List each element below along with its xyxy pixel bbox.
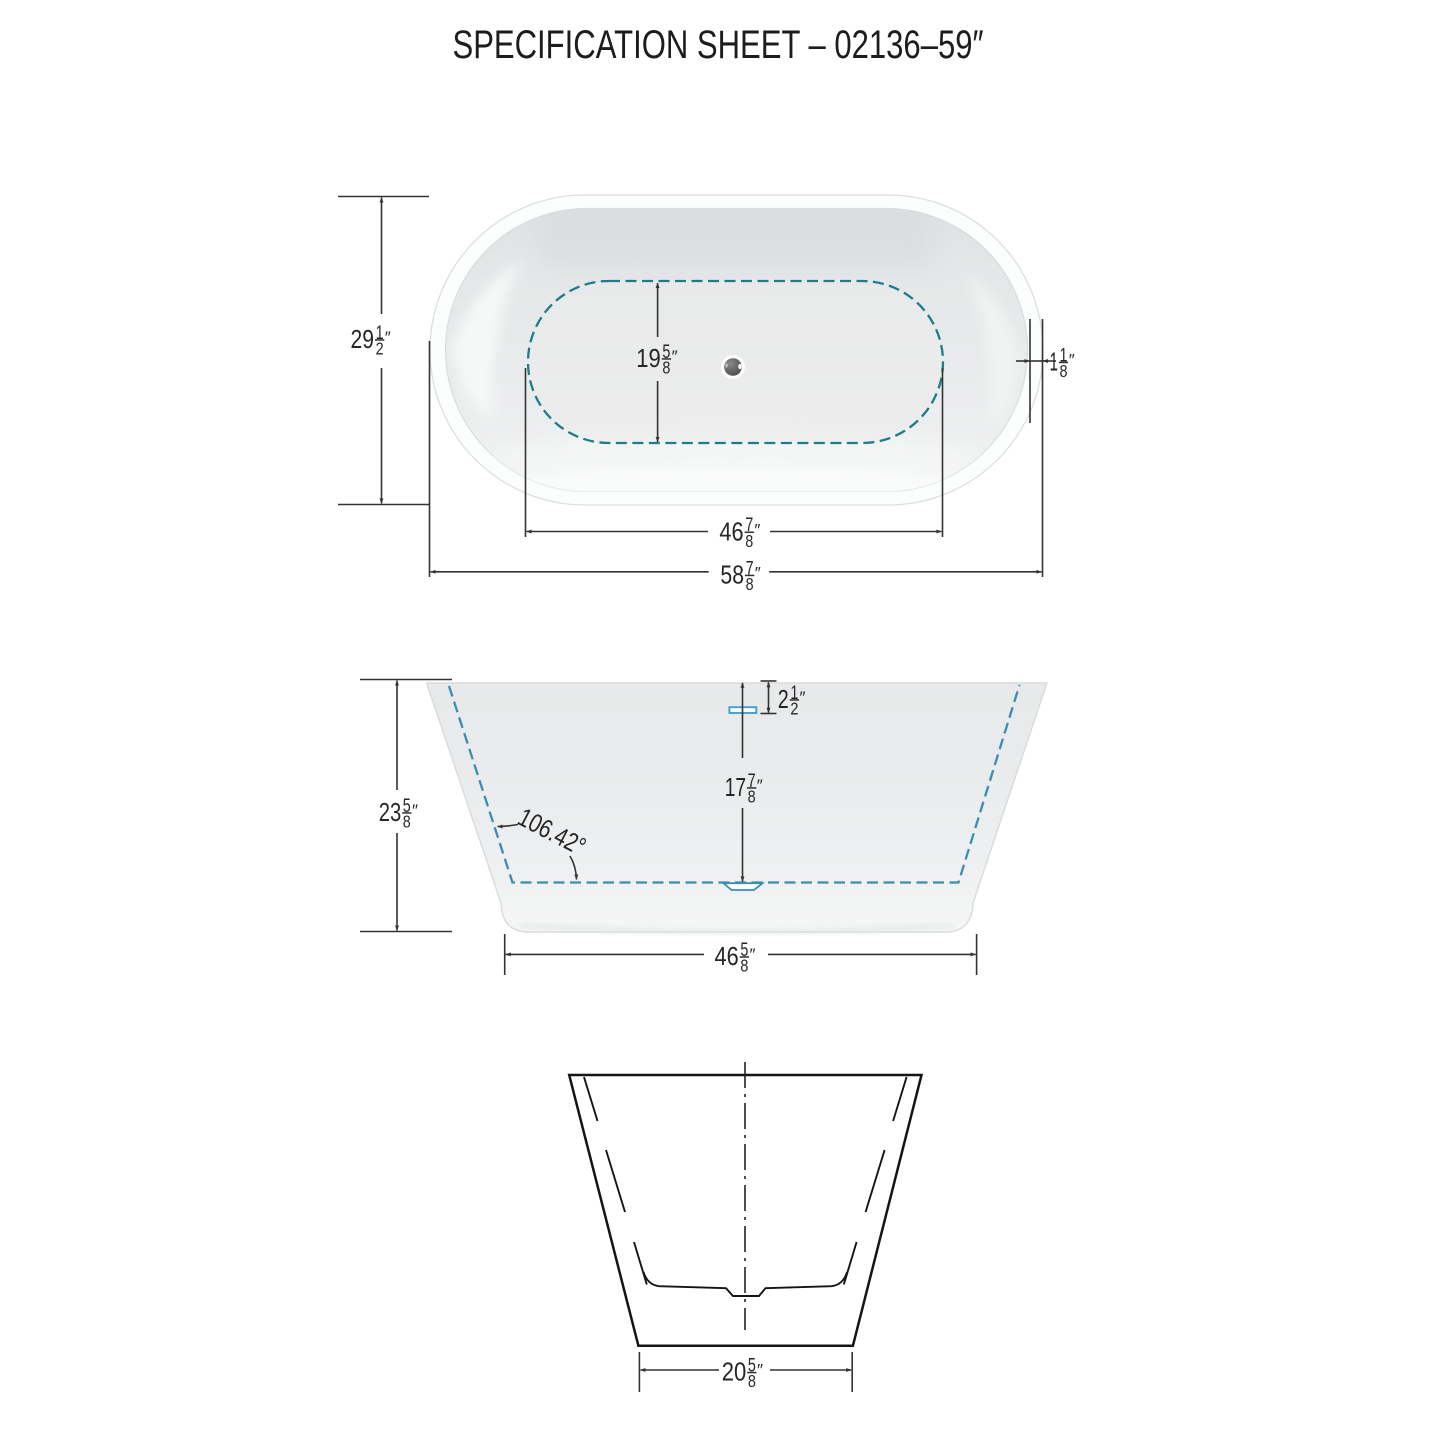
svg-text:″: ″ (750, 945, 756, 964)
svg-text:58: 58 (720, 560, 744, 590)
svg-text:SPECIFICATION SHEET – 02136–59: SPECIFICATION SHEET – 02136–59″ (453, 23, 984, 67)
svg-text:8: 8 (403, 812, 411, 832)
svg-text:2: 2 (790, 699, 798, 719)
svg-text:8: 8 (745, 531, 753, 551)
svg-text:″: ″ (800, 688, 806, 707)
svg-text:″: ″ (672, 347, 678, 366)
svg-text:20: 20 (722, 1357, 747, 1387)
svg-text:29: 29 (351, 324, 375, 354)
svg-text:″: ″ (757, 776, 763, 795)
svg-text:23: 23 (379, 797, 402, 827)
svg-text:2: 2 (778, 684, 789, 714)
svg-text:″: ″ (1069, 351, 1075, 370)
svg-text:″: ″ (385, 328, 391, 347)
svg-text:8: 8 (1060, 361, 1068, 381)
svg-text:46: 46 (719, 516, 743, 546)
svg-text:46: 46 (715, 941, 739, 971)
svg-text:″: ″ (757, 1361, 763, 1380)
svg-text:8: 8 (746, 574, 754, 594)
svg-text:17: 17 (725, 772, 746, 802)
svg-text:8: 8 (740, 956, 748, 976)
svg-text:″: ″ (754, 520, 760, 539)
svg-text:″: ″ (755, 564, 761, 583)
svg-text:8: 8 (662, 358, 670, 378)
svg-text:8: 8 (748, 1371, 756, 1391)
svg-text:19: 19 (636, 343, 661, 373)
svg-text:2: 2 (376, 339, 384, 359)
svg-text:1: 1 (1050, 347, 1058, 377)
svg-text:8: 8 (748, 787, 756, 807)
svg-text:″: ″ (412, 801, 418, 820)
